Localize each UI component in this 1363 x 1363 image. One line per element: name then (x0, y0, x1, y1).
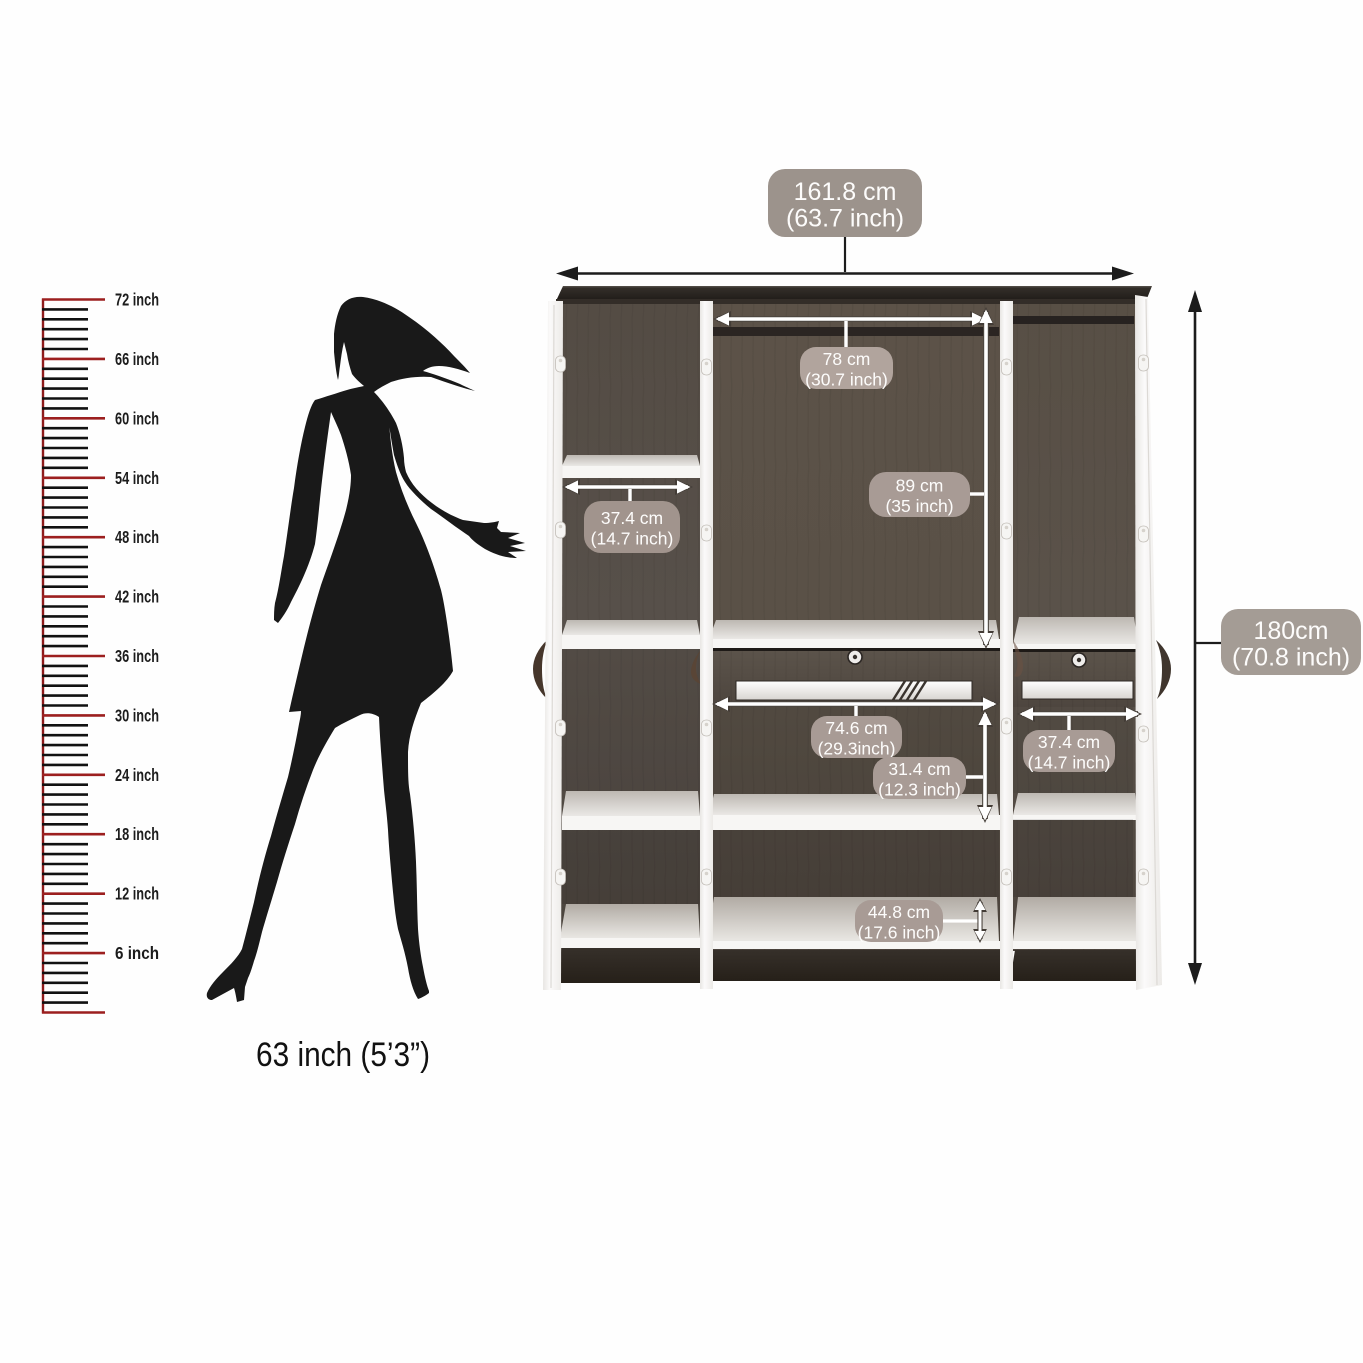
svg-text:24 inch: 24 inch (115, 765, 159, 785)
svg-text:66 inch: 66 inch (115, 349, 159, 369)
svg-text:60 inch: 60 inch (115, 408, 159, 428)
svg-text:(14.7 inch): (14.7 inch) (1028, 752, 1111, 772)
svg-text:48 inch: 48 inch (115, 527, 159, 547)
svg-text:18 inch: 18 inch (115, 824, 159, 844)
svg-text:(29.3inch): (29.3inch) (818, 738, 896, 758)
svg-text:12 inch: 12 inch (115, 884, 159, 904)
svg-text:30 inch: 30 inch (115, 705, 159, 725)
svg-text:180cm: 180cm (1253, 617, 1328, 645)
svg-text:36 inch: 36 inch (115, 646, 159, 666)
svg-text:44.8 cm: 44.8 cm (868, 902, 930, 922)
svg-text:74.6 cm: 74.6 cm (825, 718, 887, 738)
svg-text:89 cm: 89 cm (896, 476, 944, 496)
svg-text:72 inch: 72 inch (115, 290, 159, 310)
svg-text:(70.8 inch): (70.8 inch) (1232, 644, 1350, 672)
svg-text:31.4 cm: 31.4 cm (888, 759, 950, 779)
svg-text:37.4 cm: 37.4 cm (1038, 732, 1100, 752)
svg-text:(63.7 inch): (63.7 inch) (786, 205, 904, 233)
svg-text:37.4 cm: 37.4 cm (601, 508, 663, 528)
svg-text:78 cm: 78 cm (823, 349, 871, 369)
svg-text:(30.7 inch): (30.7 inch) (805, 369, 888, 389)
svg-text:(12.3 inch): (12.3 inch) (878, 779, 961, 799)
svg-text:54 inch: 54 inch (115, 468, 159, 488)
svg-text:42 inch: 42 inch (115, 587, 159, 607)
svg-text:6 inch: 6 inch (115, 943, 159, 963)
svg-text:(35 inch): (35 inch) (885, 496, 953, 516)
svg-text:(14.7 inch): (14.7 inch) (591, 528, 674, 548)
svg-text:161.8 cm: 161.8 cm (794, 178, 897, 206)
svg-text:(17.6 inch): (17.6 inch) (858, 922, 941, 942)
svg-text:63 inch (5’3”): 63 inch (5’3”) (256, 1036, 430, 1074)
